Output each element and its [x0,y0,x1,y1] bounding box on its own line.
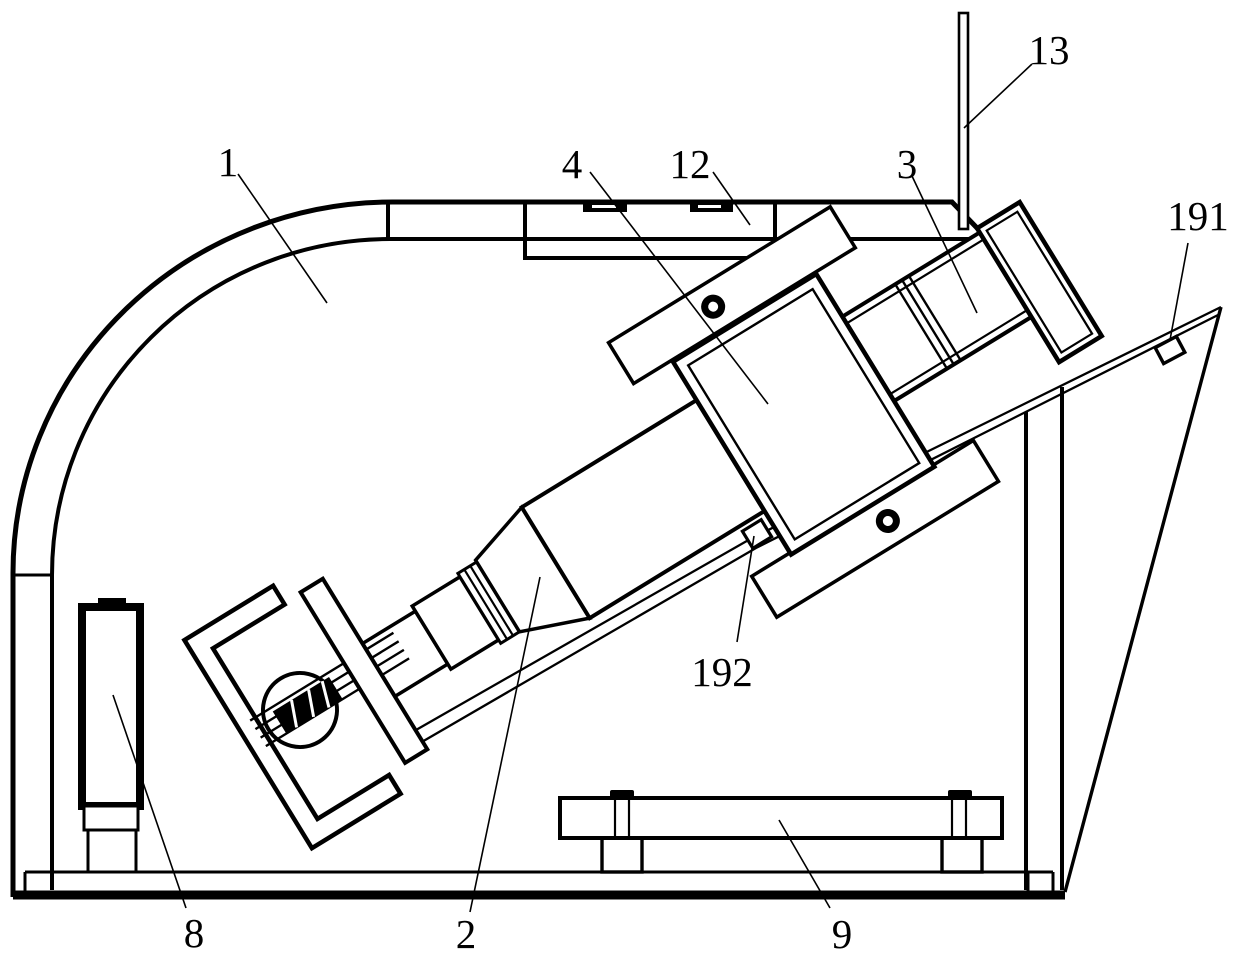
stop-block-body [1155,336,1185,363]
rail-bar [560,798,1002,838]
brace-long-edge [1065,307,1221,892]
column-pedestal-lower [88,830,136,872]
figure-canvas: 1234891213191192 [0,0,1240,960]
side-brace [1026,307,1221,892]
part-label-4: 4 [562,141,583,187]
base-plate [13,872,1065,895]
support-column [82,598,140,872]
figure-container: 1234891213191192 [0,0,1240,960]
part-label-192: 192 [691,649,753,695]
part-label-1: 1 [218,139,239,185]
part-label-13: 13 [1029,27,1070,73]
leader-line-192 [737,536,754,642]
antenna-rod [959,13,968,229]
part-label-8: 8 [184,910,205,956]
leader-line-1 [238,174,327,303]
rod-body [959,13,968,229]
mount-rail [560,790,1002,872]
rail-bolt-cap-right [948,790,972,798]
part-label-3: 3 [897,141,918,187]
part-label-12: 12 [670,141,711,187]
part-label-191: 191 [1167,193,1229,239]
panel-slot-right-gap [698,205,721,208]
stop-block [1155,336,1185,363]
rail-leg-right [942,838,982,872]
column-body [82,607,140,806]
part-label-2: 2 [456,911,477,957]
part-label-9: 9 [832,911,853,957]
column-pedestal-upper [84,806,138,830]
leader-line-13 [964,64,1032,128]
panel-slot-left-gap [592,205,616,208]
rail-leg-left [602,838,642,872]
rail-bolt-cap-left [610,790,634,798]
